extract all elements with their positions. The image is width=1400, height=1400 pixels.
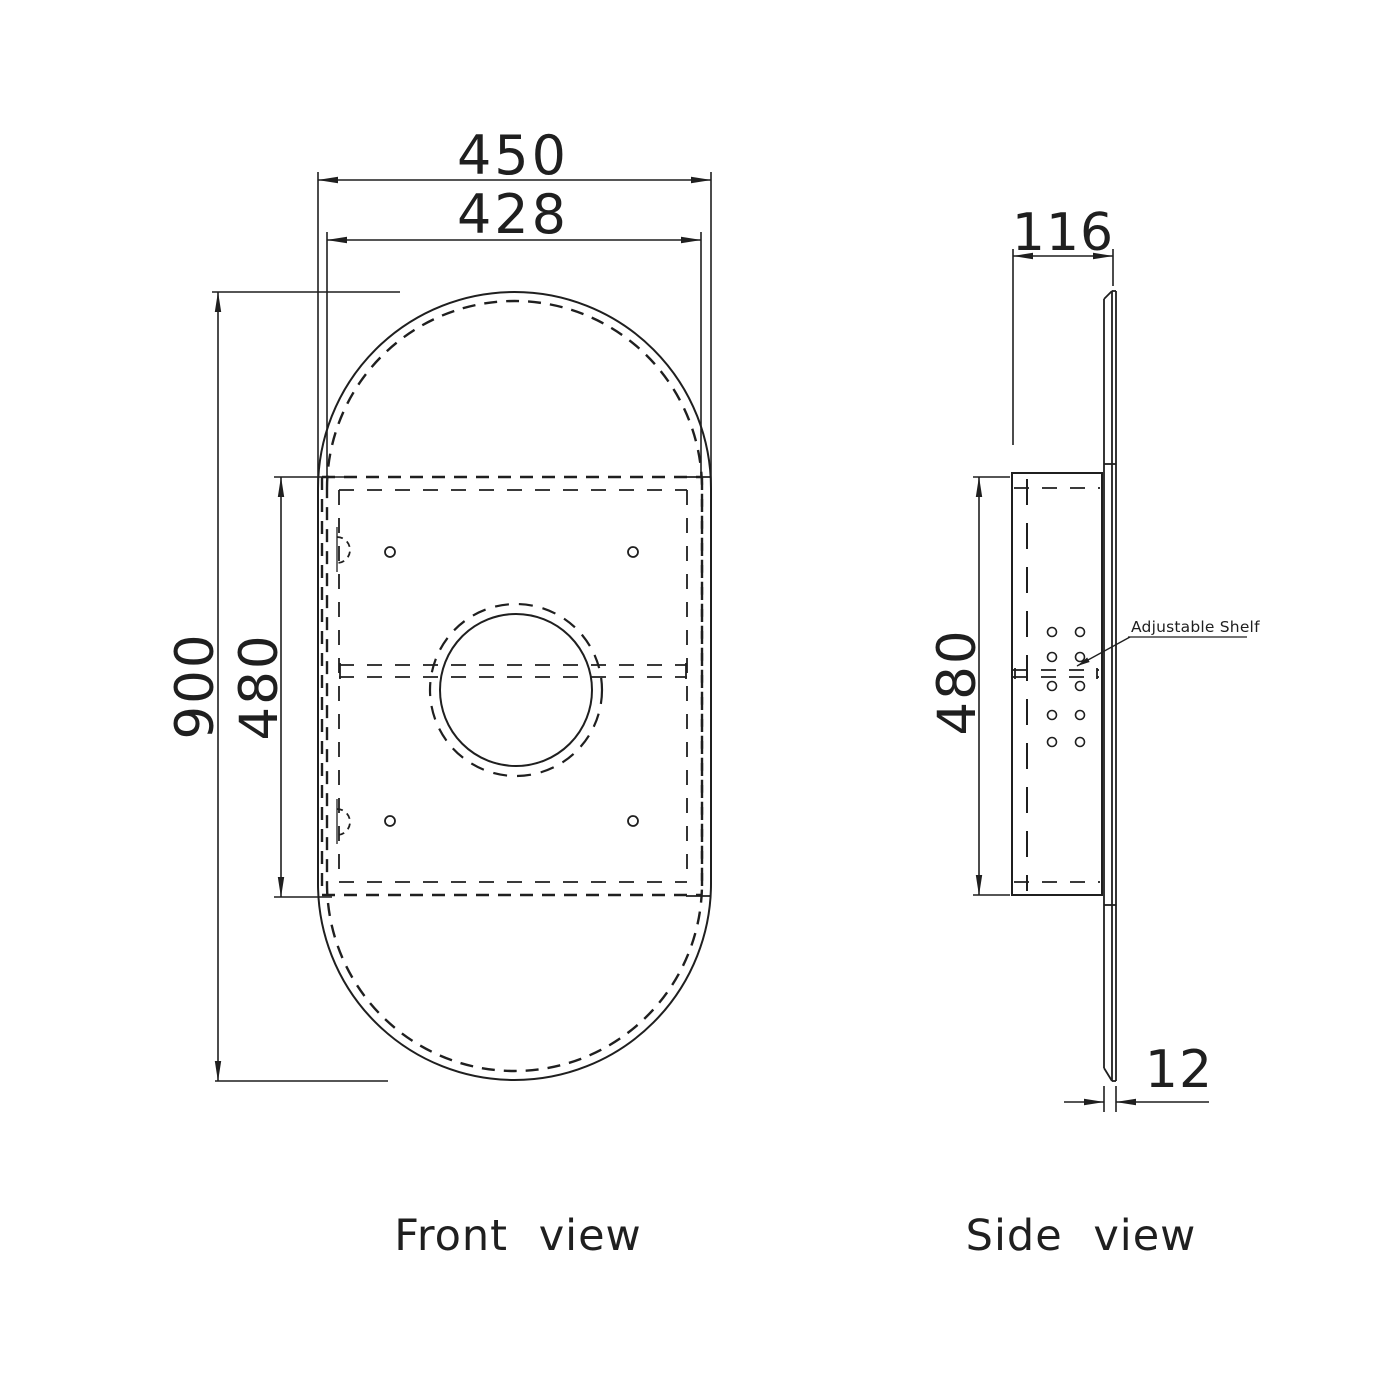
dim-12-value: 12 (1145, 1040, 1213, 1100)
screw-hole (628, 816, 638, 826)
side-cabinet-box (1012, 473, 1102, 895)
screw-hole (628, 547, 638, 557)
front-view: 450 428 900 480 (165, 124, 711, 1081)
panel-top-bevel (1104, 291, 1112, 299)
screw-hole (385, 547, 395, 557)
pin-hole (1076, 738, 1085, 747)
screw-hole (385, 816, 395, 826)
pin-hole (1048, 682, 1057, 691)
pin-hole (1048, 738, 1057, 747)
dim-116: 116 (1012, 203, 1114, 445)
pin-hole (1076, 653, 1085, 662)
pin-hole (1076, 711, 1085, 720)
dim-428: 428 (327, 183, 701, 477)
technical-drawing: 450 428 900 480 (0, 0, 1400, 1400)
front-view-title: Front view (394, 1211, 641, 1261)
side-shelf-hidden (1013, 668, 1099, 679)
pin-hole (1076, 628, 1085, 637)
panel-bottom-bevel (1104, 1068, 1112, 1081)
drawing-canvas: 450 428 900 480 (0, 0, 1400, 1400)
shelf-callout-label: Adjustable Shelf (1131, 618, 1260, 636)
dim-450-value: 450 (457, 124, 569, 187)
dim-900-value: 900 (165, 632, 226, 739)
pin-hole (1048, 711, 1057, 720)
front-cabinet-hidden-box (322, 477, 711, 896)
pin-hole (1076, 682, 1085, 691)
dim-12: 12 (1064, 1040, 1213, 1112)
dim-428-value: 428 (457, 183, 569, 246)
front-door-outline (318, 292, 711, 1080)
front-circle-hidden (430, 604, 602, 776)
dim-480-side: 480 (927, 477, 1010, 895)
dim-450: 450 (318, 124, 711, 490)
front-shelf-hidden (339, 663, 687, 679)
front-circle-solid (440, 614, 592, 766)
pin-hole (1048, 653, 1057, 662)
side-door-panel (1104, 291, 1116, 1081)
side-view: 116 480 12 Adjustable Shelf (927, 203, 1260, 1112)
dim-480-front-value: 480 (229, 633, 290, 740)
pin-hole (1048, 628, 1057, 637)
dim-116-value: 116 (1012, 203, 1114, 263)
side-shelf-pin-holes (1048, 628, 1085, 747)
dim-480-front: 480 (229, 477, 348, 897)
side-view-title: Side view (966, 1211, 1197, 1261)
front-screw-holes (385, 547, 638, 826)
front-backpanel-hidden-outline (327, 301, 702, 1071)
dim-480-side-value: 480 (927, 628, 988, 735)
